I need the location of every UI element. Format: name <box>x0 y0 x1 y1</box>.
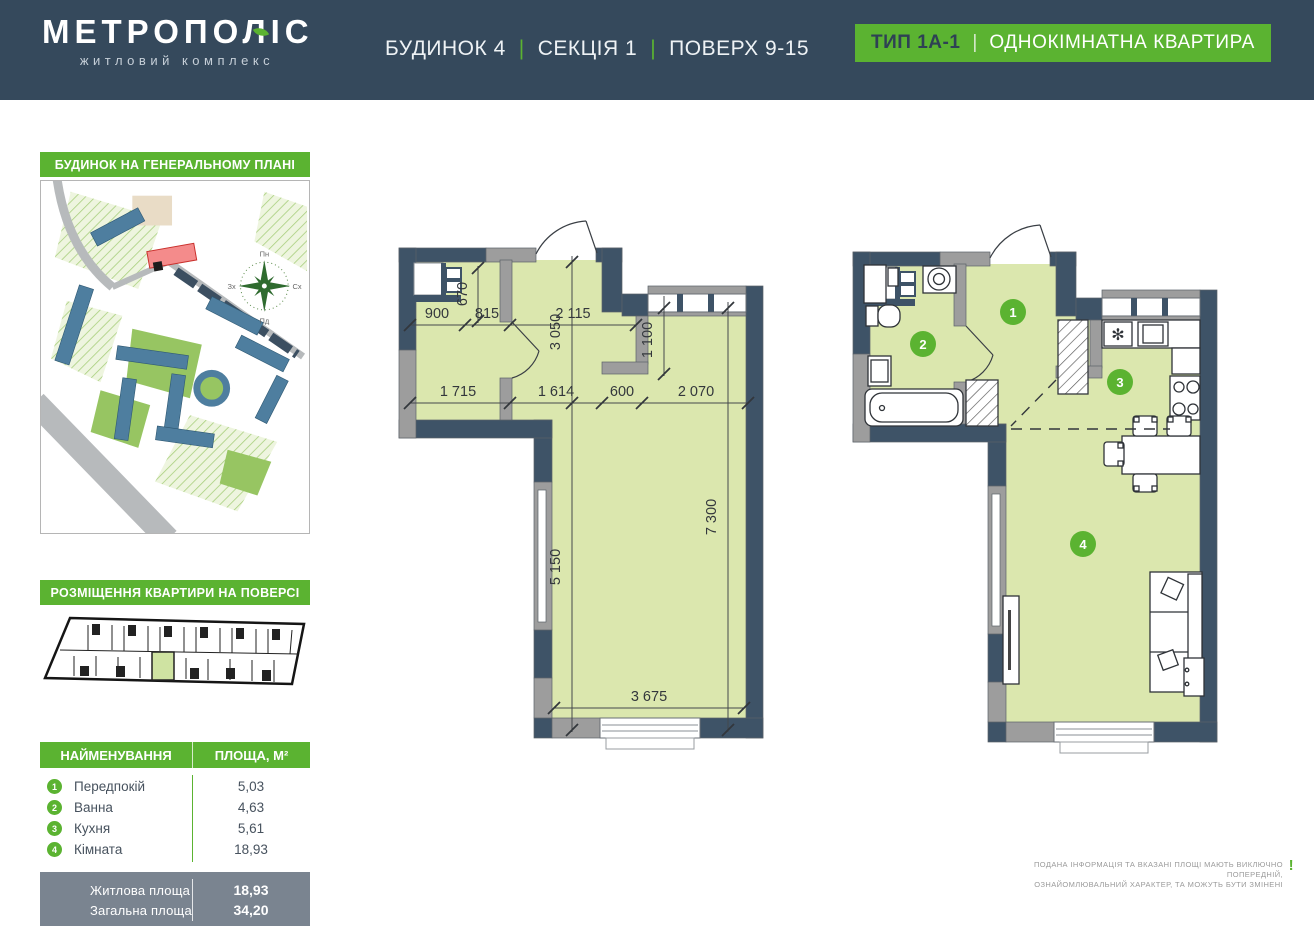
dim-1715: 1 715 <box>440 384 476 400</box>
room-area: 18,93 <box>192 842 310 857</box>
entrance-door <box>536 221 597 254</box>
apartment-type-badge: ТИП 1А-1 | ОДНОКІМНАТНА КВАРТИРА <box>855 24 1271 62</box>
dim-3050: 3 050 <box>548 314 564 350</box>
exclamation-icon: ! <box>1289 861 1294 871</box>
room-number-badge: 3 <box>47 821 62 836</box>
table-totals: Житлова площа 18,93 Загальна площа 34,20 <box>40 872 310 926</box>
dim-1100: 1 100 <box>640 322 656 358</box>
brand-subtitle: житловий комплекс <box>42 53 312 68</box>
room-name: Ванна <box>74 800 113 815</box>
disclaimer: ПОДАНА ІНФОРМАЦІЯ ТА ВКАЗАНІ ПЛОЩІ МАЮТЬ… <box>1000 860 1296 890</box>
room-name: Кухня <box>74 821 110 836</box>
total-value: 18,93 <box>192 882 310 898</box>
room-area: 5,03 <box>192 779 310 794</box>
compass-west: Зх <box>227 282 235 291</box>
table-body: 1 Передпокій 5,03 2 Ванна 4,63 3 Кухня 5… <box>40 768 310 869</box>
kitchen-window <box>1102 290 1200 320</box>
dim-900: 900 <box>425 306 449 322</box>
stove-icon <box>1170 376 1200 420</box>
total-value: 34,20 <box>192 902 310 918</box>
total-row: Загальна площа 34,20 <box>40 900 310 920</box>
breadcrumb-floors: ПОВЕРХ 9-15 <box>669 37 809 60</box>
svg-text:3: 3 <box>1116 375 1123 390</box>
dim-815: 815 <box>475 306 499 322</box>
breadcrumb-separator: | <box>506 37 538 60</box>
tv-stand-icon <box>1003 596 1019 684</box>
header-bar: МЕТРОПОЛІС житловий комплекс БУДИНОК 4|С… <box>0 0 1314 100</box>
brand-title: МЕТРОПОЛІС <box>42 14 312 50</box>
table-row: 1 Передпокій 5,03 <box>40 776 310 797</box>
disclaimer-line1: ПОДАНА ІНФОРМАЦІЯ ТА ВКАЗАНІ ПЛОЩІ МАЮТЬ… <box>1000 860 1283 880</box>
room-badge-room: 4 <box>1070 531 1096 557</box>
dimensioned-floor-plan: 900 815 2 115 1 715 1 614 600 2 070 670 … <box>396 220 781 765</box>
pond <box>197 373 227 403</box>
breadcrumb-separator: | <box>637 37 669 60</box>
total-label: Житлова площа <box>90 883 190 898</box>
room-number-badge: 2 <box>47 800 62 815</box>
room-number-badge: 4 <box>47 842 62 857</box>
chair-icon <box>1167 416 1191 436</box>
fridge-icon: ✻ <box>1104 322 1132 346</box>
disclaimer-line2: ОЗНАЙОМЛЮВАЛЬНИЙ ХАРАКТЕР, ТА МОЖУТЬ БУТ… <box>1000 880 1283 890</box>
cabinet-icon <box>864 265 886 303</box>
side-table-icon <box>1184 658 1204 696</box>
washing-machine-icon <box>923 266 956 293</box>
svg-text:1: 1 <box>1009 305 1016 320</box>
area-table: НАЙМЕНУВАННЯ ПЛОЩА, М² 1 Передпокій 5,03… <box>40 742 310 926</box>
highlighted-unit <box>152 652 174 680</box>
chair-icon <box>1104 442 1124 466</box>
breadcrumb-building: БУДИНОК 4 <box>385 37 506 60</box>
wardrobe-icon <box>966 380 998 426</box>
badge-separator: | <box>960 32 989 54</box>
brand-logo: МЕТРОПОЛІС житловий комплекс <box>42 14 312 68</box>
room-number-badge: 1 <box>47 779 62 794</box>
table-row: 4 Кімната 18,93 <box>40 839 310 860</box>
dim-5150: 5 150 <box>548 549 564 585</box>
room-badge-bath: 2 <box>910 331 936 357</box>
col-name-header: НАЙМЕНУВАННЯ <box>40 742 193 768</box>
sink-icon <box>868 356 891 386</box>
site-map-drawing: Пн Сх Пд Зх <box>41 181 309 533</box>
dim-670: 670 <box>455 282 471 306</box>
dim-2070: 2 070 <box>678 384 714 400</box>
breadcrumb: БУДИНОК 4|СЕКЦІЯ 1|ПОВЕРХ 9-15 <box>385 37 809 61</box>
room-name: Кімната <box>74 842 122 857</box>
toilet-icon <box>866 305 900 327</box>
svg-text:2: 2 <box>919 337 926 352</box>
room-name: Передпокій <box>74 779 145 794</box>
sidebar: БУДИНОК НА ГЕНЕРАЛЬНОМУ ПЛАНІ <box>40 152 310 912</box>
dim-7300: 7 300 <box>704 499 720 535</box>
col-area-header: ПЛОЩА, М² <box>193 742 310 768</box>
floor-plan-label: РОЗМІЩЕННЯ КВАРТИРИ НА ПОВЕРСІ <box>40 580 310 605</box>
table-row: 2 Ванна 4,63 <box>40 797 310 818</box>
total-row: Житлова площа 18,93 <box>40 880 310 900</box>
vent-shaft <box>414 263 461 302</box>
table-header: НАЙМЕНУВАННЯ ПЛОЩА, М² <box>40 742 310 768</box>
badge-apartment-name: ОДНОКІМНАТНА КВАРТИРА <box>989 32 1255 54</box>
room-badge-kitchen: 3 <box>1107 369 1133 395</box>
table-row: 3 Кухня 5,61 <box>40 818 310 839</box>
room-badge-hall: 1 <box>1000 299 1026 325</box>
dim-600: 600 <box>610 384 634 400</box>
room-area: 5,61 <box>192 821 310 836</box>
room-window <box>600 718 700 749</box>
kitchen-window <box>648 286 746 316</box>
breadcrumb-section: СЕКЦІЯ 1 <box>538 37 637 60</box>
wardrobe-icon <box>1058 320 1088 394</box>
furnished-floor-plan: ✻ <box>850 224 1235 769</box>
compass-east: Сх <box>293 282 302 291</box>
badge-type: ТИП 1А-1 <box>871 32 960 54</box>
floor-silhouette <box>40 610 310 710</box>
bathtub-icon <box>865 389 963 426</box>
kitchen-counter <box>1172 348 1200 374</box>
general-plan-label: БУДИНОК НА ГЕНЕРАЛЬНОМУ ПЛАНІ <box>40 152 310 177</box>
dim-1614: 1 614 <box>538 384 574 400</box>
room-area: 4,63 <box>192 800 310 815</box>
svg-text:✻: ✻ <box>1111 327 1124 344</box>
dim-3675: 3 675 <box>631 689 667 705</box>
apartment-interior <box>416 260 746 718</box>
entrance-door <box>990 225 1051 258</box>
chair-icon <box>1133 474 1157 492</box>
shelf-icon <box>888 268 898 286</box>
chair-icon <box>1133 416 1157 436</box>
site-map: Пн Сх Пд Зх <box>40 180 310 534</box>
page: МЕТРОПОЛІС житловий комплекс БУДИНОК 4|С… <box>0 0 1314 926</box>
kitchen-sink-icon <box>1138 322 1168 346</box>
total-label: Загальна площа <box>90 903 192 918</box>
dining-table-icon <box>1122 436 1200 474</box>
compass-south: Пд <box>259 317 269 326</box>
room-window <box>1054 722 1154 753</box>
svg-text:4: 4 <box>1079 537 1087 552</box>
compass-north: Пн <box>260 249 269 258</box>
